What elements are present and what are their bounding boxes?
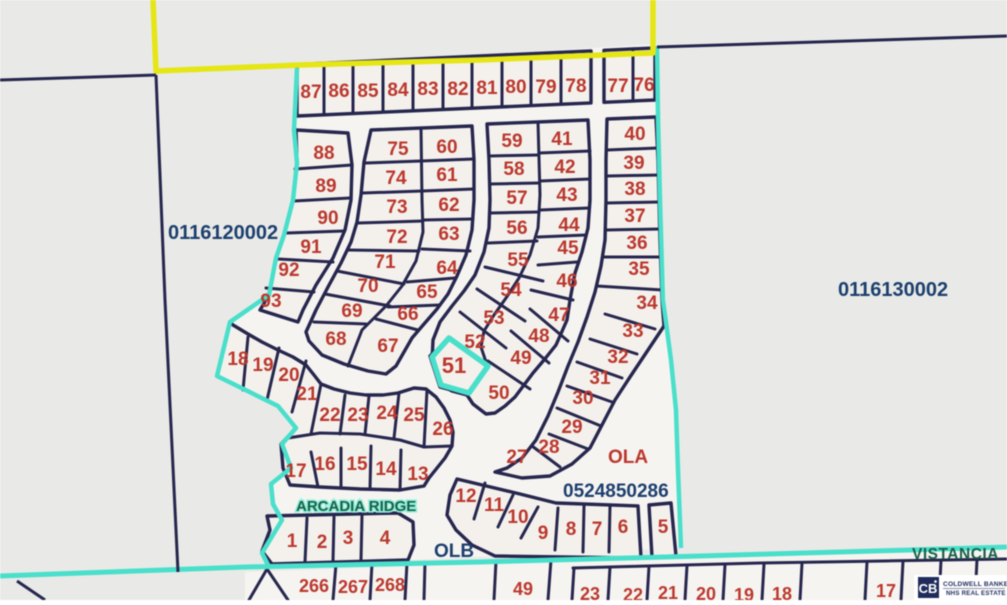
svg-text:14: 14 xyxy=(375,459,397,480)
svg-text:12: 12 xyxy=(455,486,476,507)
svg-text:89: 89 xyxy=(315,176,336,197)
svg-text:35: 35 xyxy=(628,259,650,280)
svg-text:30: 30 xyxy=(572,388,593,409)
svg-text:22: 22 xyxy=(319,405,340,426)
svg-text:52: 52 xyxy=(464,332,485,353)
svg-text:83: 83 xyxy=(417,79,438,100)
svg-text:CB: CB xyxy=(919,581,938,596)
svg-text:45: 45 xyxy=(557,238,579,259)
svg-text:93: 93 xyxy=(260,291,281,312)
svg-text:19: 19 xyxy=(734,585,754,600)
svg-text:17: 17 xyxy=(285,461,306,482)
svg-text:10: 10 xyxy=(507,507,528,528)
svg-text:78: 78 xyxy=(565,76,586,97)
svg-text:46: 46 xyxy=(556,271,577,292)
svg-text:87: 87 xyxy=(300,82,321,103)
svg-text:OLA: OLA xyxy=(608,447,648,468)
svg-text:51: 51 xyxy=(442,353,466,378)
svg-text:5: 5 xyxy=(658,517,669,538)
svg-text:23: 23 xyxy=(347,405,368,426)
svg-text:90: 90 xyxy=(317,208,338,229)
svg-text:53: 53 xyxy=(483,308,504,329)
svg-text:COLDWELL BANKER: COLDWELL BANKER xyxy=(943,581,1007,588)
svg-text:70: 70 xyxy=(357,276,378,297)
svg-text:92: 92 xyxy=(278,260,299,281)
svg-text:61: 61 xyxy=(436,165,458,186)
svg-text:266: 266 xyxy=(299,576,329,596)
svg-text:26: 26 xyxy=(432,419,453,440)
svg-text:72: 72 xyxy=(386,227,407,248)
svg-text:32: 32 xyxy=(607,347,628,368)
svg-text:38: 38 xyxy=(624,179,645,200)
svg-text:11: 11 xyxy=(484,495,505,516)
svg-text:59: 59 xyxy=(501,131,522,152)
svg-text:267: 267 xyxy=(338,577,368,597)
svg-text:77: 77 xyxy=(607,76,628,97)
svg-text:ARCADIA RIDGE: ARCADIA RIDGE xyxy=(296,498,416,515)
svg-text:88: 88 xyxy=(313,143,334,164)
svg-text:29: 29 xyxy=(561,417,582,438)
svg-text:91: 91 xyxy=(300,237,322,258)
svg-text:54: 54 xyxy=(500,280,522,301)
svg-text:19: 19 xyxy=(252,355,273,376)
svg-text:18: 18 xyxy=(772,584,792,600)
svg-text:31: 31 xyxy=(589,368,611,389)
svg-text:84: 84 xyxy=(387,80,409,101)
svg-text:56: 56 xyxy=(506,218,527,239)
svg-text:85: 85 xyxy=(357,81,379,102)
svg-text:33: 33 xyxy=(622,321,643,342)
svg-text:20: 20 xyxy=(278,365,299,386)
svg-text:66: 66 xyxy=(397,304,418,325)
svg-text:63: 63 xyxy=(438,224,459,245)
svg-text:69: 69 xyxy=(341,301,362,322)
svg-text:18: 18 xyxy=(227,349,248,370)
svg-text:28: 28 xyxy=(538,437,559,458)
svg-text:OLB: OLB xyxy=(434,541,474,562)
svg-text:80: 80 xyxy=(505,77,526,98)
svg-text:49: 49 xyxy=(513,579,533,599)
svg-text:75: 75 xyxy=(387,139,409,160)
svg-text:13: 13 xyxy=(407,464,428,485)
svg-text:71: 71 xyxy=(374,252,396,273)
svg-text:49: 49 xyxy=(510,348,531,369)
svg-text:43: 43 xyxy=(556,185,577,206)
svg-text:268: 268 xyxy=(375,575,405,595)
svg-text:8: 8 xyxy=(566,519,577,540)
svg-text:48: 48 xyxy=(528,326,549,347)
svg-text:21: 21 xyxy=(658,583,678,600)
svg-text:0116130002: 0116130002 xyxy=(838,279,948,301)
svg-text:74: 74 xyxy=(385,168,407,189)
svg-text:81: 81 xyxy=(476,78,498,99)
svg-text:68: 68 xyxy=(325,329,346,350)
svg-text:0524850286: 0524850286 xyxy=(563,481,669,502)
svg-text:34: 34 xyxy=(636,293,658,314)
svg-text:41: 41 xyxy=(551,129,573,150)
svg-text:0116120002: 0116120002 xyxy=(168,222,278,244)
svg-text:24: 24 xyxy=(376,403,398,424)
svg-text:57: 57 xyxy=(506,188,527,209)
svg-text:76: 76 xyxy=(633,75,654,96)
svg-text:65: 65 xyxy=(416,282,438,303)
svg-text:22: 22 xyxy=(623,585,643,600)
svg-text:23: 23 xyxy=(580,584,600,600)
svg-text:40: 40 xyxy=(624,124,645,145)
svg-text:20: 20 xyxy=(696,584,716,600)
svg-text:67: 67 xyxy=(377,336,398,357)
svg-text:4: 4 xyxy=(380,528,391,549)
svg-text:37: 37 xyxy=(624,206,645,227)
svg-text:60: 60 xyxy=(436,137,457,158)
svg-text:42: 42 xyxy=(554,157,575,178)
svg-text:82: 82 xyxy=(447,79,468,100)
svg-text:3: 3 xyxy=(343,528,354,549)
svg-text:6: 6 xyxy=(618,517,629,538)
svg-text:17: 17 xyxy=(876,581,896,600)
svg-text:55: 55 xyxy=(507,250,529,271)
svg-text:62: 62 xyxy=(438,195,459,216)
svg-text:7: 7 xyxy=(592,519,603,540)
svg-text:36: 36 xyxy=(626,233,647,254)
svg-text:NHS REAL ESTATE: NHS REAL ESTATE xyxy=(946,590,1006,597)
svg-text:39: 39 xyxy=(623,153,644,174)
svg-text:47: 47 xyxy=(548,305,569,326)
svg-text:16: 16 xyxy=(314,454,335,475)
svg-text:50: 50 xyxy=(488,383,509,404)
svg-text:86: 86 xyxy=(328,81,349,102)
svg-text:VISTANCIA: VISTANCIA xyxy=(912,546,999,563)
svg-text:1: 1 xyxy=(287,531,298,552)
svg-text:15: 15 xyxy=(346,454,368,475)
svg-text:25: 25 xyxy=(403,405,425,426)
svg-text:21: 21 xyxy=(296,384,318,405)
svg-text:2: 2 xyxy=(317,532,328,553)
svg-text:73: 73 xyxy=(386,197,407,218)
svg-text:44: 44 xyxy=(558,215,580,236)
svg-text:79: 79 xyxy=(535,77,556,98)
svg-text:9: 9 xyxy=(538,523,549,544)
svg-text:27: 27 xyxy=(506,447,527,468)
svg-text:58: 58 xyxy=(503,159,524,180)
svg-text:64: 64 xyxy=(436,258,458,279)
